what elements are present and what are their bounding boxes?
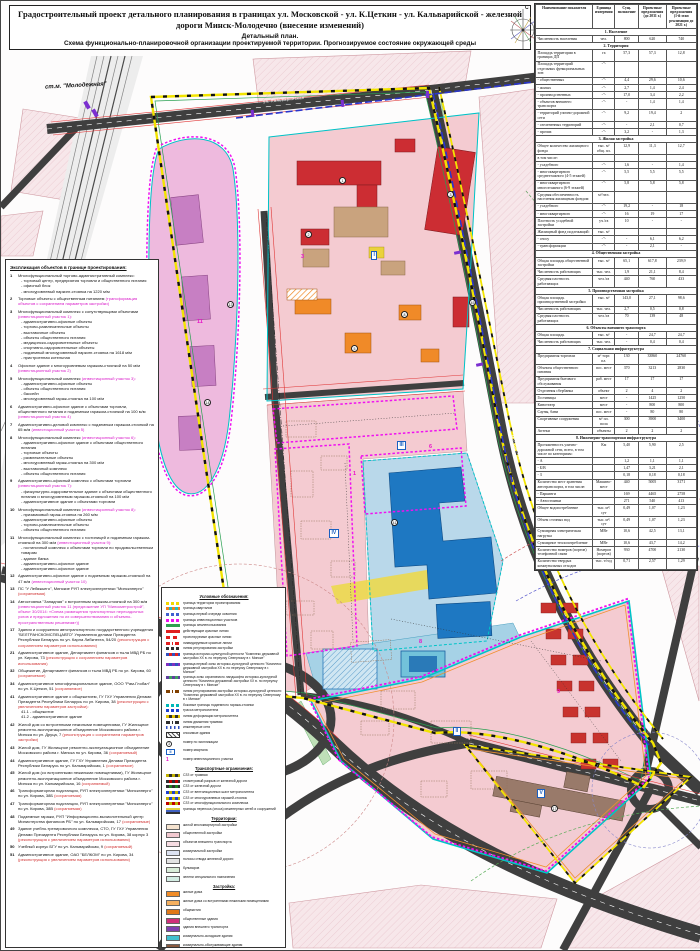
indicator-name: Гостиницы bbox=[536, 395, 593, 402]
indicator-value: 3213 bbox=[639, 365, 666, 377]
legend-symbol-entry: IIномер квартала bbox=[166, 748, 282, 755]
legend-label: ликвидируемые красные линии bbox=[183, 641, 232, 645]
indicator-name: - озелененных территорий bbox=[536, 122, 593, 129]
legend-swatch bbox=[166, 832, 180, 838]
indicator-value: 0,71 bbox=[615, 558, 639, 570]
indicator-value: 130 bbox=[615, 353, 639, 365]
indicator-value: 2 bbox=[615, 388, 639, 395]
indicator-value bbox=[593, 491, 615, 498]
indicator-name: Общее водопотребление bbox=[536, 505, 593, 517]
table-row: - усадебного-"-19,2-18 bbox=[536, 203, 697, 210]
indicator-value: 65,1 bbox=[615, 257, 639, 269]
indicator-value: тыс. м² общ. пл. bbox=[593, 143, 615, 155]
legend-label: линия регулирования застройки историко-к… bbox=[183, 689, 282, 701]
legend-title: Условные обозначения: bbox=[166, 594, 282, 599]
explication-item-text: Административное здание, Департамент фин… bbox=[18, 650, 155, 666]
indicator-value: - bbox=[615, 243, 639, 250]
indicator-value: 6,1 bbox=[639, 236, 666, 243]
indicator-value: 1,4 bbox=[666, 161, 697, 168]
table-row: Предприятия торговлим² торг. пл.13033860… bbox=[536, 353, 697, 365]
legend-swatch bbox=[166, 690, 180, 693]
table-header-cell: Сущ. положение bbox=[615, 5, 639, 29]
explication-item-number: 46 bbox=[10, 788, 18, 798]
indicator-value: объект bbox=[593, 388, 615, 395]
explication-item-text: Многофункциональный комплекс с сопутству… bbox=[18, 309, 155, 319]
explication-item-text: Торговые объекты с общественным питанием… bbox=[18, 296, 155, 306]
indicator-name: Общая площадь производственной застройки bbox=[536, 295, 593, 307]
legend-building-entry: жилые дома со встроенными нежилыми помещ… bbox=[166, 899, 282, 906]
indicator-value: - bbox=[639, 217, 666, 229]
explication-item-number: 10 bbox=[10, 507, 18, 512]
legend-label: трасса метрополитена bbox=[183, 708, 218, 712]
table-section-label: 8. Инженерно-транспортная инфраструктура bbox=[536, 435, 697, 442]
indicator-name: Общая площадь общественной застройки bbox=[536, 257, 593, 269]
indicator-value: 1,07 bbox=[639, 516, 666, 528]
explication-item-note: (сохраняемое) bbox=[18, 673, 45, 678]
indicator-value: 1,4 bbox=[639, 84, 666, 91]
table-section-label: 5. Производственная застройка bbox=[536, 287, 697, 294]
indicator-value: 48 bbox=[666, 313, 697, 325]
legend-label: действующие красные линии bbox=[183, 629, 228, 633]
legend-transport-entry: стометровый разрыв от железной дороги bbox=[166, 779, 282, 783]
indicator-name: Площадь территории в границах ДП bbox=[536, 50, 593, 62]
indicator-value: 5,8 bbox=[615, 180, 639, 192]
table-row: - многоквартирного многоэтажного (6-9 эт… bbox=[536, 180, 697, 192]
legend-symbol-entry: линия регулирования застройки историко-к… bbox=[166, 689, 282, 701]
legend-label: боковые границы подземного гаража-стоянк… bbox=[183, 703, 254, 707]
indicator-name: Количество твердых коммунальных отходов bbox=[536, 558, 593, 570]
explication-item-note: (реконструкция с сохранением параметров … bbox=[18, 732, 144, 742]
indicator-value: 440 bbox=[615, 479, 639, 491]
legend-label: жилой многоквартирной застройки bbox=[183, 823, 237, 827]
indicator-value: 5,8 bbox=[666, 180, 697, 192]
explication-item-note: (сохраняемая) bbox=[54, 806, 81, 811]
explication-item: 3Многофункциональный комплекс с сопутств… bbox=[10, 309, 155, 319]
indicator-value: 17 bbox=[666, 376, 697, 388]
indicator-name: - жилых bbox=[536, 84, 593, 91]
indicator-value: 300 bbox=[615, 416, 639, 428]
legend-swatch bbox=[166, 780, 180, 783]
title-block: Градостроительный проект детального план… bbox=[9, 5, 531, 50]
indicator-value: 57,3 bbox=[615, 50, 639, 62]
table-row: - трансформации-"--2,1- bbox=[536, 243, 697, 250]
table-header-cell: Единица измерения bbox=[593, 5, 615, 29]
explication-subitem: - многоуровневый гараж-стоянка на 100 м/… bbox=[21, 396, 155, 401]
indicator-value: 6,2 bbox=[666, 236, 697, 243]
table-row: Общее водопотреблениетыс. м³/сут0,491,07… bbox=[536, 505, 697, 517]
explication-item-text: Административно-офисное здание с подземн… bbox=[18, 573, 155, 583]
indicator-value: Км bbox=[593, 442, 615, 458]
explication-item-number: 50 bbox=[10, 844, 18, 849]
table-row: Суммарная электрическая нагрузкаМВт10,64… bbox=[536, 528, 697, 540]
legend-swatch: 1 bbox=[166, 758, 180, 764]
indicator-value: 5,5 bbox=[666, 169, 697, 181]
indicator-value: - bbox=[639, 161, 666, 168]
indicator-value: 3,4 bbox=[639, 91, 666, 98]
indicator-value: -"- bbox=[593, 110, 615, 122]
indicator-value: - bbox=[666, 217, 697, 229]
explication-item: 43Жилой дом, ГУ Жилищное ремонтно-эксплу… bbox=[10, 745, 155, 755]
indicator-value: 11,3 bbox=[639, 143, 666, 155]
indicator-value: 2 bbox=[666, 388, 697, 395]
table-row: Предприятия бытового обслуживанияраб. ме… bbox=[536, 376, 697, 388]
legend-swatch bbox=[166, 785, 180, 788]
legend-swatch: 3 bbox=[166, 741, 172, 747]
legend-symbol-entry: линия регулирования застройки bbox=[166, 646, 282, 650]
legend-symbol-entry: трасса метрополитена bbox=[166, 708, 282, 712]
indicator-value: 800 bbox=[639, 402, 666, 409]
indicator-name: - многоквартирного многоэтажного (6-9 эт… bbox=[536, 180, 593, 192]
indicator-value: 16 bbox=[615, 210, 639, 217]
table-row: - Б/В1,473,212,1 bbox=[536, 465, 697, 472]
indicator-name: - трансформации bbox=[536, 243, 593, 250]
explication-item-text: Многофункциональный комплекс (инвестицио… bbox=[18, 507, 136, 512]
legend-swatch bbox=[166, 704, 180, 707]
indicator-name: Протяженность улично-дорожной сети, всег… bbox=[536, 442, 593, 458]
explication-item-text: Учебный корпус БГУ по ул. Кальварийская,… bbox=[18, 844, 132, 849]
indicator-value bbox=[666, 61, 697, 77]
explication-item-number: 2 bbox=[10, 296, 18, 306]
table-row: Отделения сбербанкаобъект242 bbox=[536, 388, 697, 395]
indicator-value: 2758 bbox=[666, 491, 697, 498]
indicator-value: 0,18 bbox=[666, 472, 697, 479]
explication-item-note: (инвестиционный участок 2) bbox=[18, 368, 71, 373]
indicator-value: 27,1 bbox=[639, 295, 666, 307]
legend-label: СЗЗ от железной дороги bbox=[183, 784, 221, 788]
legend-building-entry: общежития bbox=[166, 908, 282, 915]
explication-item-number: 44 bbox=[10, 758, 18, 768]
legend-label: жилые дома bbox=[183, 890, 202, 894]
explication-subitem: - административное здание с объектами то… bbox=[21, 499, 155, 504]
table-section-label: 2. Территория bbox=[536, 43, 697, 50]
legend-swatch bbox=[166, 841, 180, 847]
indicator-name: Средняя обеспеченность населения жилищны… bbox=[536, 192, 593, 204]
legend-swatch bbox=[166, 774, 180, 777]
indicator-value: 17 bbox=[615, 376, 639, 388]
legend-building-entry: коммунально-обслуживающие здания bbox=[166, 943, 282, 948]
table-section-label: 6. Объекты внешнего транспорта bbox=[536, 325, 697, 332]
explication-item-text: Административно-деловой комплекс с подзе… bbox=[18, 422, 155, 432]
indicator-value: -"- bbox=[593, 203, 615, 210]
indicator-value: 1,47 bbox=[615, 465, 639, 472]
explication-item-number: 7 bbox=[10, 422, 18, 432]
legend-territory-entry: жилой многоквартирной застройки bbox=[166, 823, 282, 830]
legend-label: СЗЗ от многофункционального комплекса bbox=[183, 801, 248, 805]
legend-territory-entry: полосы отвода железной дороги bbox=[166, 857, 282, 864]
indicator-value: 24,7 bbox=[639, 332, 666, 339]
indicator-value: 98,6 bbox=[666, 295, 697, 307]
indicator-value: 12,8 bbox=[666, 50, 697, 62]
explication-item: 10Многофункциональный комплекс (инвестиц… bbox=[10, 507, 155, 512]
explication-item: 49Здание учебно-тренировочного комплекса… bbox=[10, 826, 155, 842]
legend-territory-entry: общественной застройки bbox=[166, 831, 282, 838]
indicator-value: 12,9 bbox=[615, 143, 639, 155]
explication-item: 45Жилой дом (со встроенными нежилыми пом… bbox=[10, 770, 155, 786]
table-row: - Паркинги16944652758 bbox=[536, 491, 697, 498]
indicator-value: 57,3 bbox=[639, 50, 666, 62]
table-section-row: 4. Общественная застройка bbox=[536, 250, 697, 257]
indicator-value: 2,7 bbox=[615, 306, 639, 313]
table-row: Численность населениячел.800620740 bbox=[536, 35, 697, 42]
explication-item-number: 41 bbox=[10, 694, 18, 710]
indicator-value: м²/чел. bbox=[593, 192, 615, 204]
legend-label: СЗЗ от многоуровневых гаражей-стоянок bbox=[183, 796, 247, 800]
explication-item-text: Административно-офисное здание с объекта… bbox=[18, 404, 155, 420]
indicator-value: чел./га bbox=[593, 313, 615, 325]
plan-sheet: ст.м. "Молодежная"ул. Кальварийскаяул. М… bbox=[0, 0, 700, 951]
table-row: - производственных-"-17,03,42,2 bbox=[536, 91, 697, 98]
indicator-value: 2,4 bbox=[666, 84, 697, 91]
legend-symbol-entry: действующие красные линии bbox=[166, 629, 282, 633]
legend-symbol-entry: линия движения трамвая bbox=[166, 720, 282, 724]
legend-symbol-entry: инженерные сети bbox=[166, 725, 282, 729]
table-row: Площадь территории в границах ДПга57,357… bbox=[536, 50, 697, 62]
indicator-value: -"- bbox=[593, 77, 615, 84]
legend-label: коммунальной застройки bbox=[183, 849, 222, 853]
indicator-value: га bbox=[593, 50, 615, 62]
indicator-name: Предприятия торговли bbox=[536, 353, 593, 365]
legend-label: границы переноса (сноса) инженерных сете… bbox=[183, 807, 276, 811]
legend-swatch bbox=[166, 653, 180, 656]
indicator-value: мест bbox=[593, 402, 615, 409]
explication-item-number: 12 bbox=[10, 573, 18, 583]
legend-symbol-entry: 1номер инвестиционного участка bbox=[166, 757, 282, 764]
indicator-value: 1250 bbox=[666, 395, 697, 402]
table-row: Спортивные сооружениям² пл. пола30039003… bbox=[536, 416, 697, 428]
explication-item: 48Подземные гаражи, РУП "Информационно-в… bbox=[10, 814, 155, 824]
indicator-value: 10 bbox=[615, 217, 639, 229]
indicator-value: - bbox=[615, 122, 639, 129]
legend-symbol-entry: граница зоны охраняемого ландшафта истор… bbox=[166, 675, 282, 687]
legend-swatch bbox=[166, 891, 180, 897]
indicator-value: -"- bbox=[593, 180, 615, 192]
table-row: Численность работающихтыс. чел.2,70,50,8 bbox=[536, 306, 697, 313]
indicator-value: 5,5 bbox=[639, 169, 666, 181]
table-row: Объекты общественного питанияпос. мест37… bbox=[536, 365, 697, 377]
indicator-value: 0,18 bbox=[639, 472, 666, 479]
explication-item-number: 43 bbox=[10, 745, 18, 755]
legend-swatch bbox=[166, 935, 180, 941]
legend-transport-entry: границы переноса (сноса) инженерных сете… bbox=[166, 807, 282, 814]
indicator-value: 0,4 bbox=[666, 339, 697, 346]
indicator-value: м² торг. пл. bbox=[593, 353, 615, 365]
indicator-value: 29,6 bbox=[639, 77, 666, 84]
explication-item-note: (сохраняемое) bbox=[55, 686, 82, 691]
legend-swatch bbox=[166, 630, 180, 633]
indicator-value: 24,7 bbox=[666, 332, 697, 339]
indicator-name: - усадебного bbox=[536, 203, 593, 210]
explication-item: 34Административное многофункциональное з… bbox=[10, 681, 155, 691]
explication-item-number: 49 bbox=[10, 826, 18, 842]
indicator-value: 740 bbox=[666, 35, 697, 42]
explication-item-text: Административное здание, ГУ ГХУ Управлен… bbox=[18, 758, 155, 768]
legend-symbol-entry: линия деформации метрополитена bbox=[166, 714, 282, 718]
indicator-value: 10,6 bbox=[615, 528, 639, 540]
table-row: - жилых-"-2,71,42,4 bbox=[536, 84, 697, 91]
explication-title: Экспликация объектов в границе проектиро… bbox=[10, 265, 155, 270]
indicator-value: 1425 bbox=[639, 395, 666, 402]
explication-item-number: 14 bbox=[10, 599, 18, 625]
indicator-value: 43,7 bbox=[639, 539, 666, 546]
indicator-name: Объем сточных вод bbox=[536, 516, 593, 528]
table-section-label: 4. Общественная застройка bbox=[536, 250, 697, 257]
indicator-value: 2,1 bbox=[666, 465, 697, 472]
legend-panel: Условные обозначения: граница территории… bbox=[161, 587, 286, 948]
explication-item-number: 3 bbox=[10, 309, 18, 319]
explication-item-number: 34 bbox=[10, 681, 18, 691]
indicator-value: 2130 bbox=[666, 547, 697, 559]
indicator-value: 5,8 bbox=[639, 180, 666, 192]
legend-label: жилые дома со встроенными нежилыми помещ… bbox=[183, 899, 269, 903]
indicator-value bbox=[593, 498, 615, 505]
legend-swatch bbox=[166, 709, 180, 712]
legend-swatch bbox=[166, 858, 180, 864]
legend-label: СЗЗ от трамвая bbox=[183, 773, 208, 777]
indicator-value: 0,8 bbox=[666, 306, 697, 313]
explication-item-number: 1 bbox=[10, 273, 18, 278]
indicator-value: тыс. чел. bbox=[593, 339, 615, 346]
explication-item-note: (сохраняемый) bbox=[104, 844, 132, 849]
table-header-cell: Наименование показателя bbox=[536, 5, 593, 29]
legend-territory-entry: бульваров bbox=[166, 866, 282, 873]
indicator-value: 3171 bbox=[666, 479, 697, 491]
indicator-value: 19 bbox=[639, 210, 666, 217]
legend-territory-entry: коммунальной застройки bbox=[166, 849, 282, 856]
indicator-value: тыс. т/год bbox=[593, 558, 615, 570]
indicator-value: -"- bbox=[593, 210, 615, 217]
table-header-cell: Проектные предложения (1-й этап реализац… bbox=[666, 5, 697, 29]
legend-symbol-entry: сносимые здания bbox=[166, 731, 282, 738]
legend-label: номер квартала bbox=[183, 748, 208, 752]
explication-item-note: (инвестиционный участок 8): bbox=[82, 507, 136, 512]
explication-item-note: (реконструкция с увеличением параметров … bbox=[18, 837, 130, 842]
indicator-value: уч./га bbox=[593, 217, 615, 229]
legend-label: граница территории проектирования bbox=[183, 601, 240, 605]
indicator-value: 800 bbox=[615, 35, 639, 42]
explication-item: 9Административно-офисный комплекс с объе… bbox=[10, 478, 155, 488]
indicator-value: - bbox=[615, 98, 639, 110]
indicator-value: 0,7 bbox=[666, 122, 697, 129]
indicator-value: 5005 bbox=[639, 479, 666, 491]
table-section-row: 6. Объекты внешнего транспорта bbox=[536, 325, 697, 332]
explication-item: 50Учебный корпус БГУ по ул. Кальварийска… bbox=[10, 844, 155, 849]
legend-label: граница историко-культурной ценности "Ко… bbox=[183, 652, 282, 660]
indicator-name: - сносу bbox=[536, 236, 593, 243]
explication-item-note: (реконструкция с сохранением параметров … bbox=[18, 637, 149, 647]
legend-symbols: граница территории проектированияграница… bbox=[166, 601, 282, 764]
explication-item: 13ПС "У Лебяжьего", Минские РУП электроэ… bbox=[10, 586, 155, 596]
indicator-name: Суммарное теплопотребление bbox=[536, 539, 593, 546]
table-row: Общее количество жилищного фондатыс. м² … bbox=[536, 143, 697, 155]
explication-item-note: (инвестиционный участок 7): bbox=[18, 483, 72, 488]
indicator-value: - bbox=[615, 395, 639, 402]
indicator-value: пос. мест bbox=[593, 365, 615, 377]
explication-item-note: (инвестиционный участок 4) bbox=[18, 414, 71, 419]
indicator-value: тыс. м³/сут bbox=[593, 505, 615, 517]
indicator-value: 0,4 bbox=[639, 339, 666, 346]
indicator-value: - bbox=[615, 332, 639, 339]
legend-transport-entry: СЗЗ от вентиляционных шахт метрополитена bbox=[166, 790, 282, 794]
explication-item-number: 45 bbox=[10, 770, 18, 786]
legend-symbol-entry: граница территории проектирования bbox=[166, 601, 282, 605]
legend-swatch bbox=[166, 607, 180, 610]
explication-item-text: Общежитие, Департамент финансов и тыла М… bbox=[18, 668, 155, 678]
explication-subitem: - административно-офисное здание bbox=[21, 566, 155, 571]
indicator-value: - bbox=[639, 129, 666, 136]
table-row: Суммарное теплопотреблениеМВт10,643,714,… bbox=[536, 539, 697, 546]
indicator-value: МВт bbox=[593, 539, 615, 546]
compass-north-label: С bbox=[525, 5, 529, 11]
legend-label: общественные здания bbox=[183, 917, 218, 921]
indicator-value bbox=[666, 192, 697, 204]
indicator-value: МВт bbox=[593, 528, 615, 540]
indicator-value: 239,9 bbox=[666, 257, 697, 269]
explication-item: 32Общежитие, Департамент финансов и тыла… bbox=[10, 668, 155, 678]
indicator-value: 9,2 bbox=[615, 110, 639, 122]
indicator-value: 1,29 bbox=[666, 558, 697, 570]
indicator-value: - bbox=[666, 243, 697, 250]
legend-swatch bbox=[166, 900, 180, 906]
explication-item-note: (реконструкция с увеличением параметров … bbox=[18, 857, 130, 862]
indicator-value: 5,5 bbox=[615, 169, 639, 181]
legend-swatch bbox=[166, 808, 180, 814]
table-row: Аптекиобъекты222 bbox=[536, 428, 697, 435]
indicator-name: Плотность усадебной застройки bbox=[536, 217, 593, 229]
indicator-name: Объекты общественного питания bbox=[536, 365, 593, 377]
table-row: Гостиницымест-14251250 bbox=[536, 395, 697, 402]
explication-item: 44Административное здание, ГУ ГХУ Управл… bbox=[10, 758, 155, 768]
indicator-value: - bbox=[615, 339, 639, 346]
indicator-name: Площадь территорий отдельных функциональ… bbox=[536, 61, 593, 77]
legend-symbol-entry: граница первой очереди освоения bbox=[166, 612, 282, 616]
legend-building-entry: здания внешнего транспорта bbox=[166, 925, 282, 932]
table-row: - З0,180,180,18 bbox=[536, 472, 697, 479]
indicator-value: 17 bbox=[639, 376, 666, 388]
explication-item-number: 32 bbox=[10, 668, 18, 678]
legend-label: номер инвестиционного участка bbox=[183, 757, 233, 761]
explication-item-number: 13 bbox=[10, 586, 18, 596]
explication-item-note: (реконструкция с увеличением параметров … bbox=[18, 699, 149, 709]
legend-label: коммунально-складские здания bbox=[183, 934, 232, 938]
explication-item-text: Автостоянка "Западная" с встроенным гара… bbox=[18, 599, 155, 625]
table-row: - А1,21,11,1 bbox=[536, 458, 697, 465]
indicator-value: 5,40 bbox=[615, 442, 639, 458]
indicator-value: - bbox=[615, 409, 639, 416]
legend-swatch bbox=[166, 642, 180, 645]
legend-transport-entry: СЗЗ от трамвая bbox=[166, 773, 282, 777]
explication-item: 7Административно-деловой комплекс с подз… bbox=[10, 422, 155, 432]
indicator-value: 1,1 bbox=[666, 458, 697, 465]
explication-item-note: (сохраняемая) bbox=[18, 591, 45, 596]
indicator-value: 14,2 bbox=[666, 539, 697, 546]
legend-transport: СЗЗ от трамваястометровый разрыв от желе… bbox=[166, 773, 282, 814]
explication-item: 21Административное здание, Департамент ф… bbox=[10, 650, 155, 666]
explication-subitem: - объекты общественного питания bbox=[21, 527, 155, 532]
explication-item-text: ПС "У Лебяжьего", Минские РУП электроэне… bbox=[18, 586, 155, 596]
legend-label: линия деформации метрополитена bbox=[183, 714, 238, 718]
indicator-value bbox=[593, 154, 615, 161]
explication-item-number: 8 bbox=[10, 435, 18, 440]
legend-label: стометровый разрыв от железной дороги bbox=[183, 779, 247, 783]
table-row: Общая площадь производственной застройки… bbox=[536, 295, 697, 307]
legend-label: полосы отвода железной дороги bbox=[183, 857, 233, 861]
legend-swatch bbox=[166, 619, 180, 622]
indicator-value: 10,6 bbox=[615, 539, 639, 546]
explication-item-note: (сохраняемый) bbox=[109, 750, 137, 755]
indicator-value: - bbox=[615, 236, 639, 243]
explication-item-number: 5 bbox=[10, 376, 18, 381]
indicator-value: 620 bbox=[639, 35, 666, 42]
